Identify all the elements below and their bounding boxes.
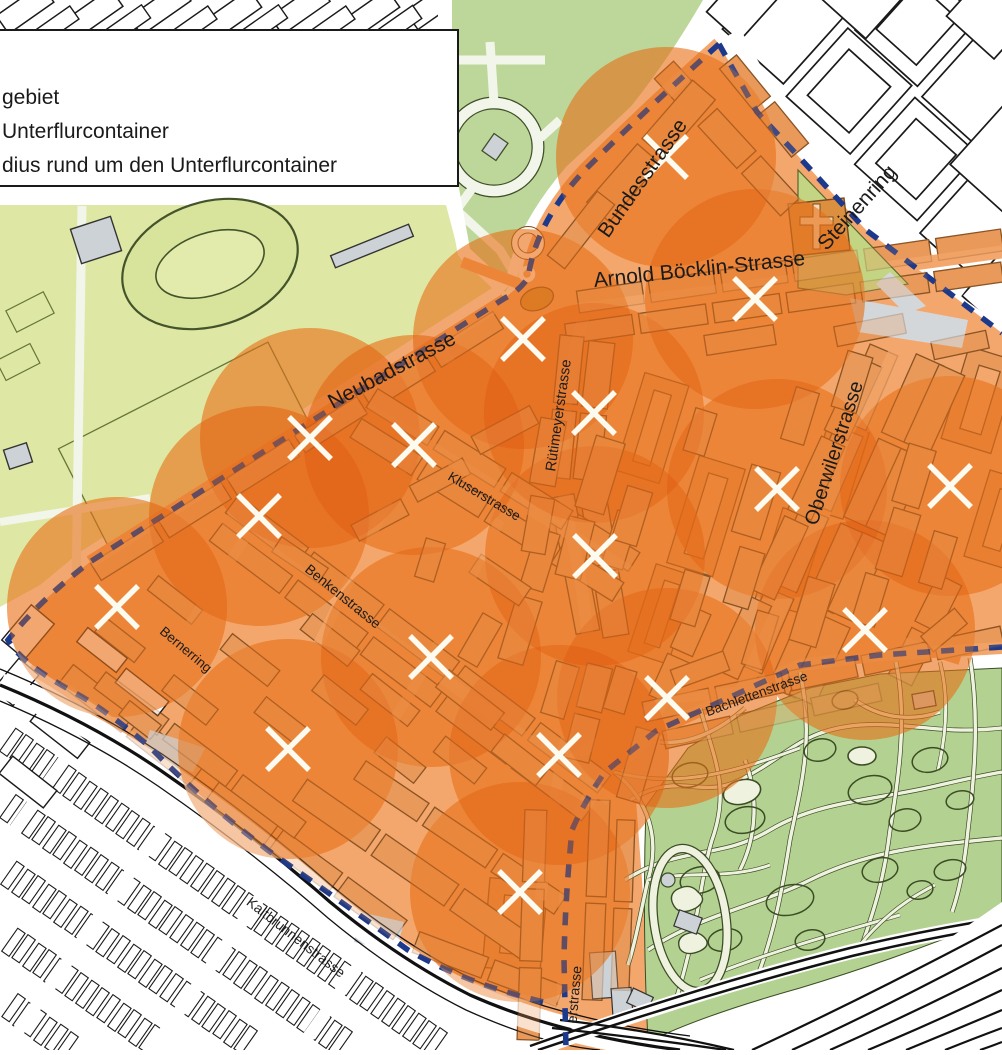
svg-text:gebiet: gebiet [2, 86, 59, 109]
svg-text:dius rund um den Unterflurcont: dius rund um den Unterflurcontainer [2, 154, 337, 177]
svg-text:Unterflurcontainer: Unterflurcontainer [2, 120, 169, 143]
